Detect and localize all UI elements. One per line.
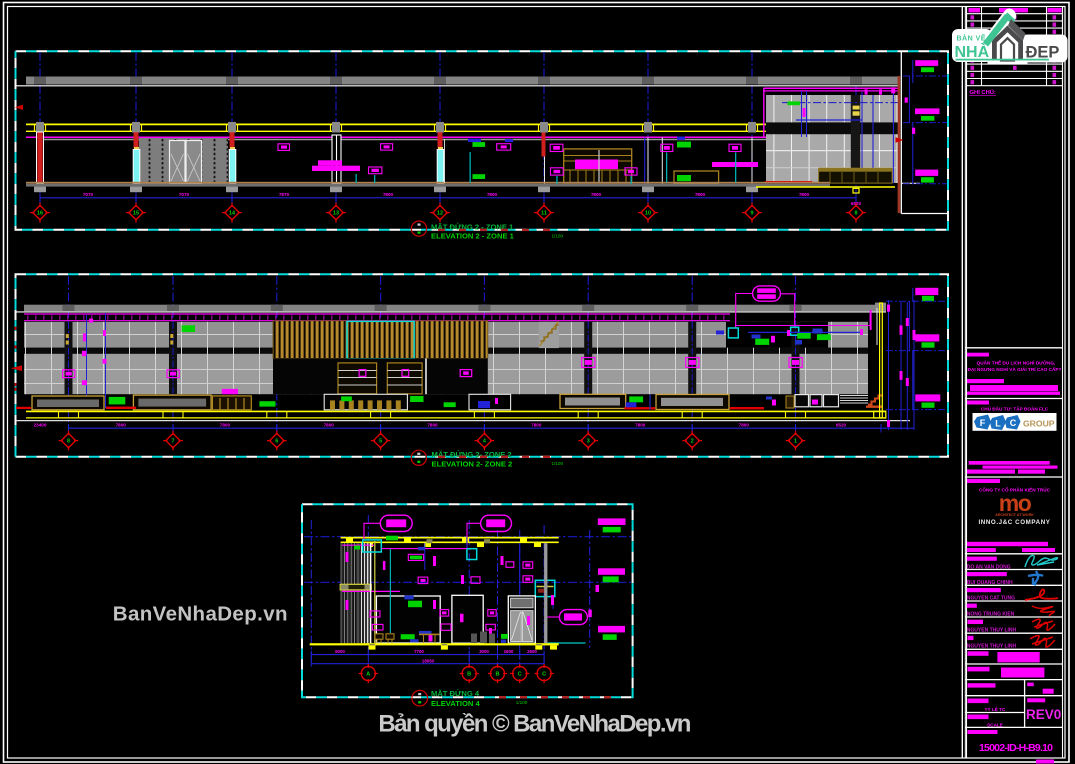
svg-text:1: 1 [794,439,797,445]
svg-text:NHÀ: NHÀ [955,42,990,61]
svg-text:A: A [366,672,370,678]
svg-text:1/100: 1/100 [516,700,528,705]
svg-text:7700: 7700 [414,649,424,654]
svg-text:1600: 1600 [504,649,514,654]
svg-text:4: 4 [483,439,486,445]
svg-text:6: 6 [275,439,278,445]
svg-text:C: C [542,672,546,678]
svg-text:C: C [518,672,522,678]
svg-text:6520: 6520 [836,422,847,427]
svg-text:MẶT ĐỨNG 4: MẶT ĐỨNG 4 [431,689,480,698]
svg-text:12: 12 [437,211,443,217]
svg-text:ELEVATION 2- ZONE 2: ELEVATION 2- ZONE 2 [432,460,513,469]
svg-text:23400: 23400 [34,422,47,427]
svg-text:7800: 7800 [220,422,231,427]
svg-text:7800: 7800 [116,422,127,427]
svg-text:C: C [1010,418,1017,428]
svg-text:13: 13 [333,211,339,217]
svg-text:GHI CHÚ:: GHI CHÚ: [970,89,996,96]
svg-text:10: 10 [645,211,651,217]
svg-text:B: B [495,672,499,678]
svg-text:7800: 7800 [799,192,810,197]
svg-text:NGUYEN THUY LINH: NGUYEN THUY LINH [967,644,1017,650]
svg-text:15002-ID-H-B9.10: 15002-ID-H-B9.10 [979,742,1053,754]
svg-text:7800: 7800 [427,422,438,427]
svg-text:7800: 7800 [531,422,542,427]
svg-text:9: 9 [751,211,754,217]
svg-text:ELEVATION 4: ELEVATION 4 [431,699,480,708]
svg-text:REV0: REV0 [1026,707,1061,722]
svg-text:B: B [467,672,471,678]
svg-text:ARCHITECT AT WORK: ARCHITECT AT WORK [995,513,1034,517]
svg-text:15: 15 [133,211,139,217]
svg-text:7800: 7800 [324,422,335,427]
svg-text:7800: 7800 [487,192,498,197]
svg-text:BUI QUANG CHINH: BUI QUANG CHINH [967,580,1013,586]
svg-text:2: 2 [691,439,694,445]
svg-text:BẢN VẼ: BẢN VẼ [957,34,986,43]
svg-text:L: L [995,419,1001,429]
svg-text:16: 16 [37,211,43,217]
svg-text:7070: 7070 [83,192,94,197]
svg-text:ĐẸP: ĐẸP [1026,43,1060,61]
svg-text:NONG TRUNG KIEN: NONG TRUNG KIEN [967,612,1015,618]
svg-text:7870: 7870 [279,192,290,197]
svg-text:TỶ LỆ TC: TỶ LỆ TC [985,705,1006,712]
svg-text:7800: 7800 [695,192,706,197]
svg-text:11: 11 [541,211,547,217]
svg-text:3: 3 [587,439,590,445]
svg-text:7800: 7800 [591,192,602,197]
svg-text:2600: 2600 [527,649,537,654]
svg-text:QUẦN THỂ DU LỊCH NGHỈ DƯỠNG,: QUẦN THỂ DU LỊCH NGHỈ DƯỠNG, [977,360,1056,366]
svg-text:Bản quyền © BanVeNhaDep.vn: Bản quyền © BanVeNhaDep.vn [378,711,691,738]
svg-text:8: 8 [67,439,70,445]
svg-text:GROUP: GROUP [1023,419,1055,429]
svg-text:14: 14 [229,211,235,217]
svg-text:1/100: 1/100 [552,233,564,238]
svg-text:7800: 7800 [383,192,394,197]
svg-text:CHỦ ĐẦU TƯ: TẬP ĐOÀN FLC: CHỦ ĐẦU TƯ: TẬP ĐOÀN FLC [981,405,1049,411]
svg-text:8: 8 [855,211,858,217]
svg-text:18050: 18050 [422,659,435,664]
svg-text:7800: 7800 [739,422,750,427]
svg-text:NGUYEN THUY LINH: NGUYEN THUY LINH [967,628,1017,634]
svg-text:BanVeNhaDep.vn: BanVeNhaDep.vn [113,603,288,626]
svg-text:INNO.J&C COMPANY: INNO.J&C COMPANY [978,519,1050,526]
svg-text:NGUYEN CAT TUNG: NGUYEN CAT TUNG [967,596,1015,602]
svg-text:1/100: 1/100 [552,461,564,466]
svg-text:SCALE: SCALE [987,722,1003,727]
svg-text:F: F [980,418,986,428]
svg-text:ELEVATION 2 - ZONE 1: ELEVATION 2 - ZONE 1 [431,232,515,241]
svg-text:7800: 7800 [635,422,646,427]
svg-text:7: 7 [172,439,175,445]
svg-text:DO AN VAN DONG: DO AN VAN DONG [967,564,1011,570]
svg-text:5: 5 [379,439,382,445]
svg-text:6000: 6000 [335,649,345,654]
svg-text:ĐẠI NGƯNG NGHỈ VÀ GIẢI TRÍ CAO: ĐẠI NGƯNG NGHỈ VÀ GIẢI TRÍ CAO CẤP? [968,365,1062,372]
svg-text:3000: 3000 [479,649,489,654]
svg-text:7070: 7070 [179,192,190,197]
